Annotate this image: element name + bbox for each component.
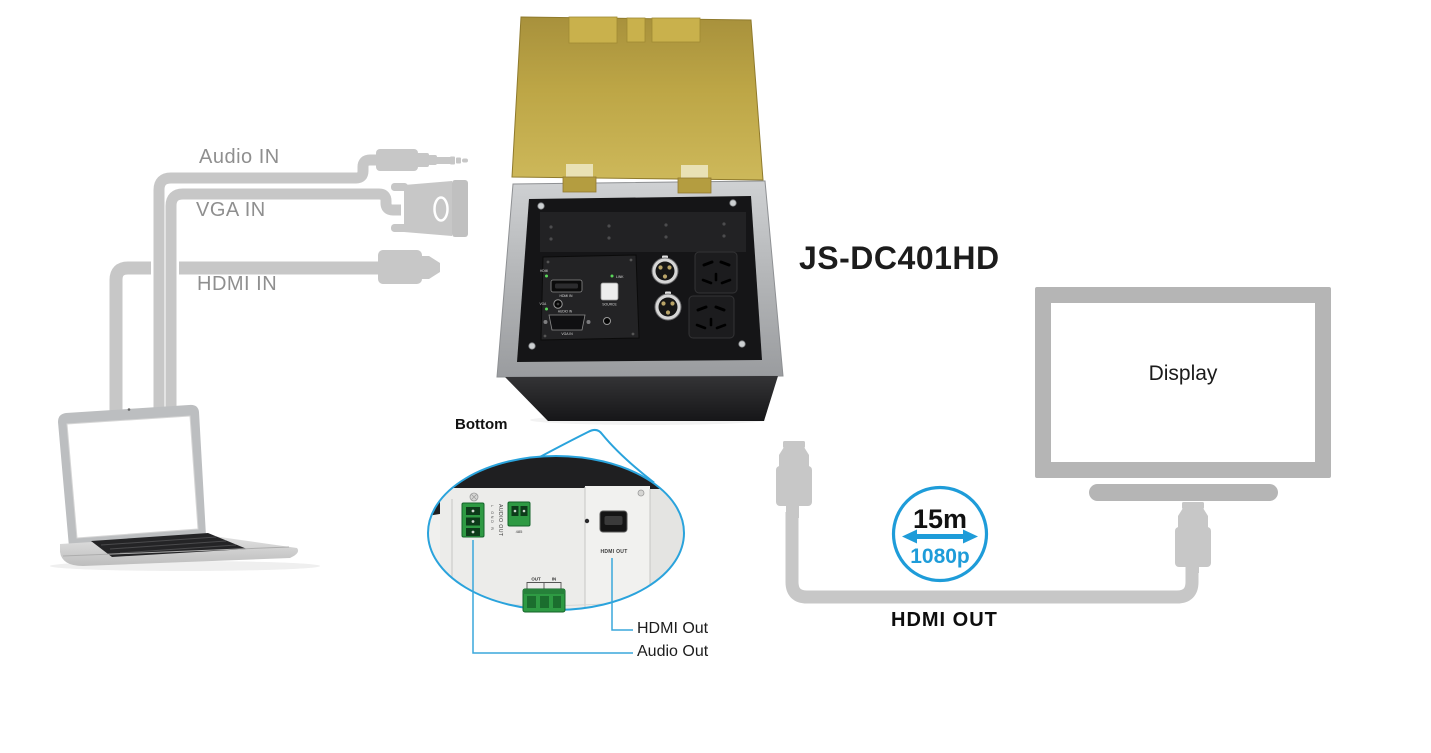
aux-jack [604, 318, 611, 325]
hdmi-out-port-label: HDMI OUT [600, 549, 627, 555]
display-monitor [1035, 287, 1331, 501]
vga-in-cable [171, 194, 401, 418]
lid-hinge [678, 178, 711, 193]
laptop [50, 405, 320, 571]
floor-box-tub [505, 376, 778, 421]
loop-out-label: OUT [531, 577, 541, 582]
input-cables [116, 149, 468, 418]
product-model: JS-DC401HD [799, 240, 1000, 277]
badge-resolution: 1080p [910, 545, 970, 568]
distance-badge: 15m 1080p [894, 488, 987, 581]
audio-out-terminal-label: AUDIO OUT [497, 504, 503, 537]
audio-out-callout-label: Audio Out [637, 643, 708, 661]
hdmi-led [545, 275, 548, 278]
serial-terminal-label: 485 [516, 529, 523, 534]
vga-in-label: VGA IN [196, 199, 266, 222]
vga-in-port [549, 315, 585, 330]
hdmi-out-cable [792, 512, 1192, 597]
hdmi-in-port-label: HDMI IN [560, 294, 574, 298]
box-back-wall [540, 212, 746, 252]
display-stand [1089, 484, 1278, 501]
hdmi-led-label: HDMI [540, 269, 548, 273]
display-label: Display [1035, 362, 1331, 386]
audio-jack-connector [376, 149, 468, 171]
loop-in-label: IN [552, 577, 556, 582]
hdmi-out-connector-display-end [1175, 502, 1211, 573]
lid-cutouts [569, 17, 700, 43]
hdmi-out-cable-label: HDMI OUT [891, 609, 998, 632]
hdmi-out-callout-label: HDMI Out [637, 620, 708, 638]
hdmi-in-connector [378, 250, 440, 284]
link-led-label: LINK [616, 275, 624, 279]
lid-hinge [563, 177, 596, 192]
bottom-view-title: Bottom [455, 416, 508, 433]
link-led [611, 275, 614, 278]
vga-led [545, 308, 548, 311]
audio-in-port-label: AUDIO IN [558, 310, 573, 314]
diagram-page: HDMI HDMI IN LINK SOURCE VGA AUDIO IN VG… [0, 0, 1431, 753]
laptop-screen [67, 416, 198, 538]
source-button-label: SOURCE [602, 303, 617, 307]
badge-distance: 15m [913, 504, 967, 534]
hdmi-in-label: HDMI IN [197, 273, 277, 296]
serial-terminal [508, 502, 530, 526]
audio-in-label: Audio IN [199, 146, 280, 169]
hdmi-out-connector-box-end [776, 441, 812, 518]
audio-out-terminal [462, 503, 484, 537]
vga-led-label: VGA [540, 302, 548, 306]
vga-connector [391, 180, 468, 237]
floor-box: HDMI HDMI IN LINK SOURCE VGA AUDIO IN VG… [497, 17, 783, 425]
source-button [601, 283, 618, 300]
io-module: HDMI HDMI IN LINK SOURCE VGA AUDIO IN VG… [540, 255, 640, 340]
vga-in-port-label: VGA IN [561, 332, 573, 336]
audio-out-pins-label: L GND R [490, 505, 494, 531]
